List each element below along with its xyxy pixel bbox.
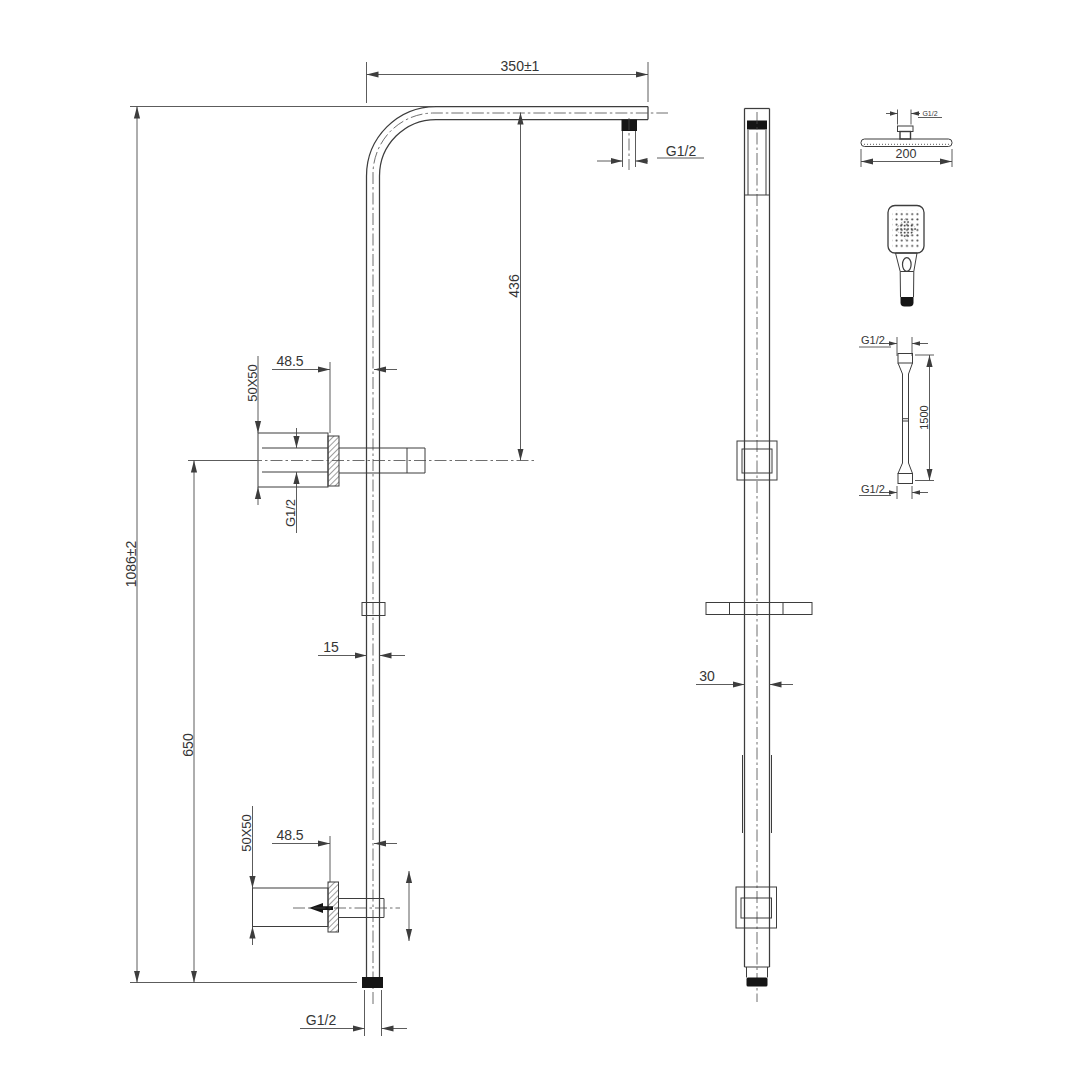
dim-lower-offset: 48.5 [272,827,397,882]
dim-lower-offset-label: 48.5 [276,827,303,843]
drawing-canvas: 350±1 G1/2 436 1086±2 650 [0,0,1080,1080]
hose-thread-top-label: G1/2 [861,334,885,346]
dim-hose-length: 1500 [915,355,934,481]
hose-thread-bottom: G1/2 [859,483,928,499]
handle-tip [901,297,914,307]
shower-head-width-label: 200 [896,147,917,161]
dim-arm-thread: G1/2 [597,143,704,162]
dim-upper-thread: G1/2 [283,428,298,533]
bottom-cap-seal [747,978,768,987]
dim-rail-depth-label: 30 [699,668,715,684]
side-rail [743,109,772,1003]
slider-clamp [362,603,385,616]
side-bracket-lower [736,887,777,928]
hand-shower-detail [888,206,924,307]
hose-body [898,354,913,484]
technical-drawing: 350±1 G1/2 436 1086±2 650 [0,0,1080,1080]
front-view: 350±1 G1/2 436 1086±2 650 [123,58,705,1036]
thread-arm-label: G1/2 [666,143,697,159]
shower-head-thread-label: G1/2 [922,110,937,117]
dim-lower-plate: 50X50 [239,806,254,945]
dim-rail-width-label: 15 [323,639,339,655]
head-connector [622,118,638,170]
shower-head-detail: G1/2 200 [861,110,952,168]
dim-upper-offset: 48.5 [272,353,397,433]
hose-thread-top: G1/2 [859,334,928,356]
hand-shower-handle [900,272,914,298]
soap-dish [706,603,812,615]
dim-total-height: 1086±2 [123,107,435,983]
hanging-hole [903,258,912,272]
bottom-inlet [362,977,383,1036]
dim-bottom-span: 650 [180,461,258,983]
hose-length-label: 1500 [918,405,930,429]
hand-shower-neck [896,253,918,272]
side-view: 30 [696,109,812,1003]
flange-upper [328,436,339,486]
dim-top-width-label: 350±1 [501,58,540,74]
dim-head-thread: G1/2 [886,110,942,125]
hose-thread-bottom-label: G1/2 [861,483,885,495]
upper-plate-size-label: 50X50 [245,364,260,402]
thread-bottom-label: G1/2 [306,1012,337,1028]
hose-detail: G1/2 1500 G1/2 [859,334,934,499]
dim-head-width: 200 [861,147,952,167]
shower-rail-pipe [367,107,669,1005]
dim-top-width: 350±1 [367,58,649,103]
dim-arm-drop: 436 [506,113,522,461]
head-connector-top [898,126,914,139]
upper-thread-label: G1/2 [283,499,298,527]
lower-wall-bracket [253,871,410,941]
dim-upper-plate: 50X50 [245,356,260,505]
dim-upper-offset-label: 48.5 [276,353,303,369]
lower-plate-size-label: 50X50 [239,814,254,852]
wall-plate-upper [258,433,328,487]
dim-drop-label: 436 [506,274,522,298]
upper-wall-bracket [250,433,535,487]
dim-bottom-span-label: 650 [180,733,196,757]
dim-rail-width: 15 [318,639,405,656]
dim-total-height-label: 1086±2 [123,540,139,587]
dim-bottom-thread: G1/2 [300,1012,407,1029]
shower-head-plate [861,139,952,147]
